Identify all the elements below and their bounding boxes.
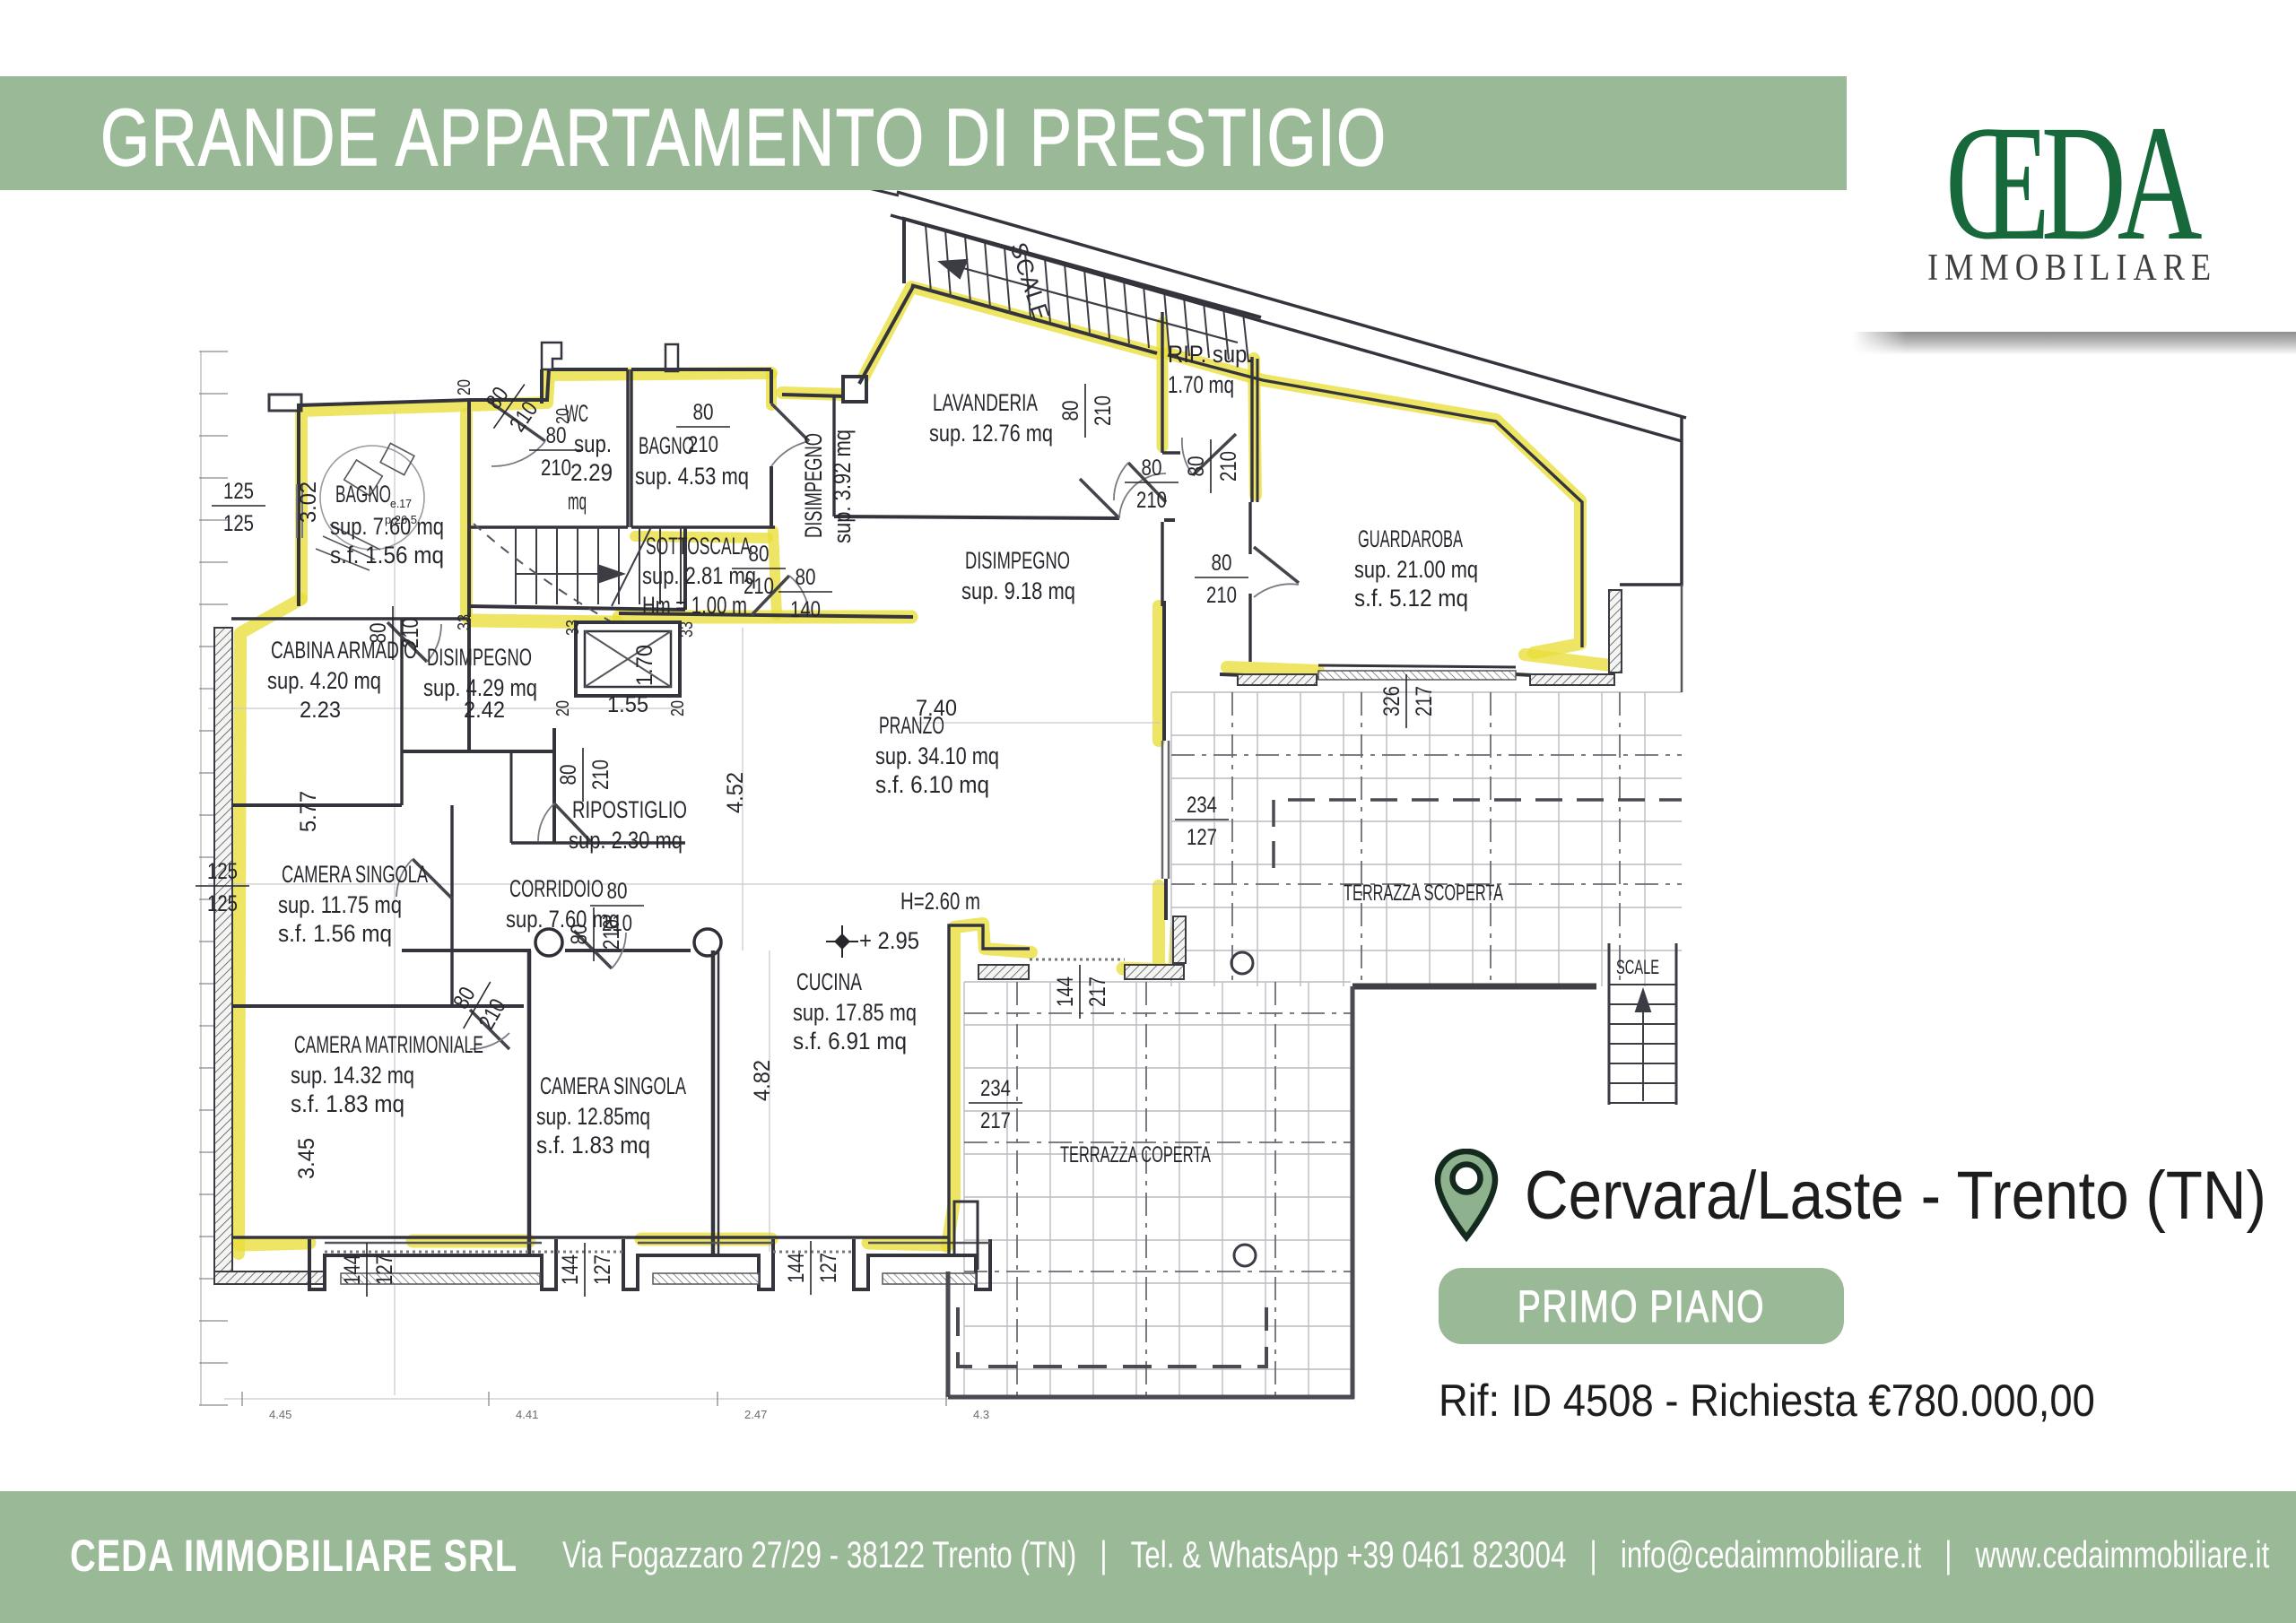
svg-text:326: 326: [1379, 686, 1405, 716]
svg-text:sup. 34.10 mq: sup. 34.10 mq: [875, 742, 999, 769]
svg-text:4.45: 4.45: [269, 1408, 291, 1421]
svg-text:sup. 17.85 mq: sup. 17.85 mq: [793, 999, 917, 1026]
svg-text:210: 210: [541, 456, 571, 481]
svg-text:sup. 21.00 mq: sup. 21.00 mq: [1354, 556, 1478, 583]
svg-text:125: 125: [207, 859, 238, 884]
svg-text:210: 210: [744, 574, 774, 599]
svg-text:80: 80: [1212, 551, 1232, 576]
svg-text:80: 80: [556, 765, 581, 785]
svg-text:217: 217: [980, 1108, 1011, 1133]
svg-text:s.f. 6.91 mq: s.f. 6.91 mq: [793, 1028, 907, 1055]
svg-text:LAVANDERIA: LAVANDERIA: [933, 389, 1038, 416]
svg-text:210: 210: [688, 432, 718, 457]
svg-text:4.52: 4.52: [723, 772, 748, 813]
svg-text:4.3: 4.3: [973, 1408, 989, 1421]
svg-text:TERRAZZA COPERTA: TERRAZZA COPERTA: [1060, 1142, 1211, 1167]
svg-text:CORRIDOIO: CORRIDOIO: [509, 875, 604, 902]
svg-text:20: 20: [668, 700, 688, 716]
svg-text:80: 80: [607, 879, 628, 904]
svg-text:80: 80: [546, 423, 567, 448]
svg-text:sup. 2.30 mq: sup. 2.30 mq: [569, 827, 683, 854]
svg-text:Hm = 1.00 m: Hm = 1.00 m: [642, 592, 747, 619]
svg-text:234: 234: [980, 1076, 1011, 1101]
svg-text:SOTTOSCALA: SOTTOSCALA: [646, 533, 751, 560]
svg-text:2.29: 2.29: [570, 459, 613, 486]
svg-text:p.26.5: p.26.5: [385, 513, 417, 526]
svg-text:210: 210: [398, 618, 423, 648]
svg-text:125: 125: [223, 479, 254, 504]
svg-text:210: 210: [1216, 451, 1241, 482]
svg-text:e.17: e.17: [390, 497, 412, 510]
svg-text:80: 80: [1058, 401, 1083, 421]
svg-text:210: 210: [1091, 395, 1116, 426]
svg-text:sup. 2.81 mq: sup. 2.81 mq: [642, 562, 756, 589]
svg-text:140: 140: [790, 597, 821, 622]
svg-text:20: 20: [455, 379, 474, 395]
svg-text:210: 210: [1136, 488, 1167, 513]
svg-text:33: 33: [455, 614, 474, 630]
svg-text:210: 210: [1206, 583, 1237, 608]
svg-text:RIP. sup.: RIP. sup.: [1168, 341, 1253, 368]
svg-text:BAGNO: BAGNO: [639, 432, 694, 459]
svg-text:CUCINA: CUCINA: [796, 968, 862, 995]
svg-text:20: 20: [553, 700, 573, 716]
svg-text:80: 80: [366, 623, 391, 644]
svg-text:DISIMPEGNO: DISIMPEGNO: [800, 433, 827, 538]
svg-text:2.42: 2.42: [464, 698, 505, 723]
svg-text:217: 217: [1085, 976, 1110, 1007]
svg-text:sup.: sup.: [574, 430, 612, 457]
svg-text:CAMERA MATRIMONIALE: CAMERA MATRIMONIALE: [294, 1031, 483, 1058]
svg-text:SCALE: SCALE: [1616, 956, 1659, 978]
svg-text:80: 80: [749, 542, 770, 567]
svg-text:80: 80: [796, 565, 816, 590]
svg-text:210: 210: [602, 911, 632, 936]
svg-text:125: 125: [207, 891, 238, 916]
svg-text:s.f. 5.12 mq: s.f. 5.12 mq: [1354, 585, 1468, 612]
svg-text:CAMERA SINGOLA: CAMERA SINGOLA: [540, 1072, 686, 1099]
svg-text:1.55: 1.55: [607, 692, 648, 717]
svg-text:GUARDAROBA: GUARDAROBA: [1358, 525, 1463, 552]
svg-text:144: 144: [1053, 976, 1078, 1007]
svg-text:144: 144: [558, 1254, 583, 1285]
svg-text:sup. 4.53 mq: sup. 4.53 mq: [635, 463, 749, 490]
svg-text:127: 127: [816, 1253, 841, 1283]
svg-text:234: 234: [1187, 793, 1217, 818]
svg-text:7.40: 7.40: [916, 696, 957, 721]
svg-text:s.f. 1.83 mq: s.f. 1.83 mq: [291, 1090, 404, 1117]
svg-text:5.77: 5.77: [296, 791, 321, 832]
svg-text:CABINA ARMADIO: CABINA ARMADIO: [271, 637, 417, 664]
svg-text:sup. 3.92 mq: sup. 3.92 mq: [829, 430, 856, 543]
svg-text:80: 80: [1142, 456, 1162, 481]
svg-text:s.f. 1.56 mq: s.f. 1.56 mq: [330, 542, 444, 568]
svg-text:1.70: 1.70: [632, 645, 657, 686]
svg-text:sup. 12.76 mq: sup. 12.76 mq: [929, 420, 1053, 447]
svg-text:s.f. 6.10 mq: s.f. 6.10 mq: [875, 771, 989, 798]
svg-text:s.f. 1.56 mq: s.f. 1.56 mq: [278, 920, 392, 947]
svg-text:sup. 9.18 mq: sup. 9.18 mq: [961, 577, 1075, 604]
svg-text:127: 127: [1187, 825, 1217, 850]
svg-text:sup. 11.75 mq: sup. 11.75 mq: [278, 891, 402, 918]
svg-text:sup. 4.20 mq: sup. 4.20 mq: [267, 667, 381, 694]
svg-text:125: 125: [223, 511, 254, 536]
svg-text:4.82: 4.82: [750, 1060, 775, 1101]
svg-text:mq: mq: [568, 488, 587, 515]
svg-text:BAGNO: BAGNO: [335, 481, 391, 508]
svg-text:2.23: 2.23: [300, 698, 341, 723]
svg-text:3.45: 3.45: [294, 1138, 319, 1179]
svg-text:2.47: 2.47: [744, 1408, 767, 1421]
svg-text:20: 20: [553, 408, 573, 424]
svg-text:DISIMPEGNO: DISIMPEGNO: [427, 644, 532, 671]
svg-text:217: 217: [1412, 686, 1437, 716]
svg-text:80: 80: [693, 400, 714, 425]
svg-text:127: 127: [590, 1254, 615, 1285]
svg-text:CAMERA SINGOLA: CAMERA SINGOLA: [282, 861, 428, 888]
svg-text:H=2.60 m: H=2.60 m: [900, 888, 980, 915]
svg-text:33: 33: [677, 621, 697, 638]
svg-text:RIPOSTIGLIO: RIPOSTIGLIO: [572, 796, 687, 823]
svg-text:127: 127: [372, 1254, 397, 1285]
svg-text:33: 33: [563, 620, 583, 636]
svg-text:4.41: 4.41: [516, 1408, 538, 1421]
svg-text:TERRAZZA SCOPERTA: TERRAZZA SCOPERTA: [1344, 881, 1503, 906]
svg-text:DISIMPEGNO: DISIMPEGNO: [965, 547, 1070, 574]
svg-text:80: 80: [1184, 456, 1209, 477]
svg-text:1.70 mq: 1.70 mq: [1168, 371, 1234, 398]
svg-text:+ 2.95: + 2.95: [859, 927, 919, 954]
svg-text:144: 144: [784, 1253, 809, 1283]
svg-text:sup. 12.85mq: sup. 12.85mq: [536, 1103, 650, 1130]
svg-text:144: 144: [340, 1254, 365, 1285]
svg-text:80: 80: [567, 924, 592, 945]
svg-text:3.02: 3.02: [296, 482, 321, 523]
svg-text:210: 210: [588, 759, 613, 790]
svg-text:sup. 14.32 mq: sup. 14.32 mq: [291, 1062, 414, 1089]
svg-text:s.f. 1.83 mq: s.f. 1.83 mq: [536, 1132, 650, 1159]
